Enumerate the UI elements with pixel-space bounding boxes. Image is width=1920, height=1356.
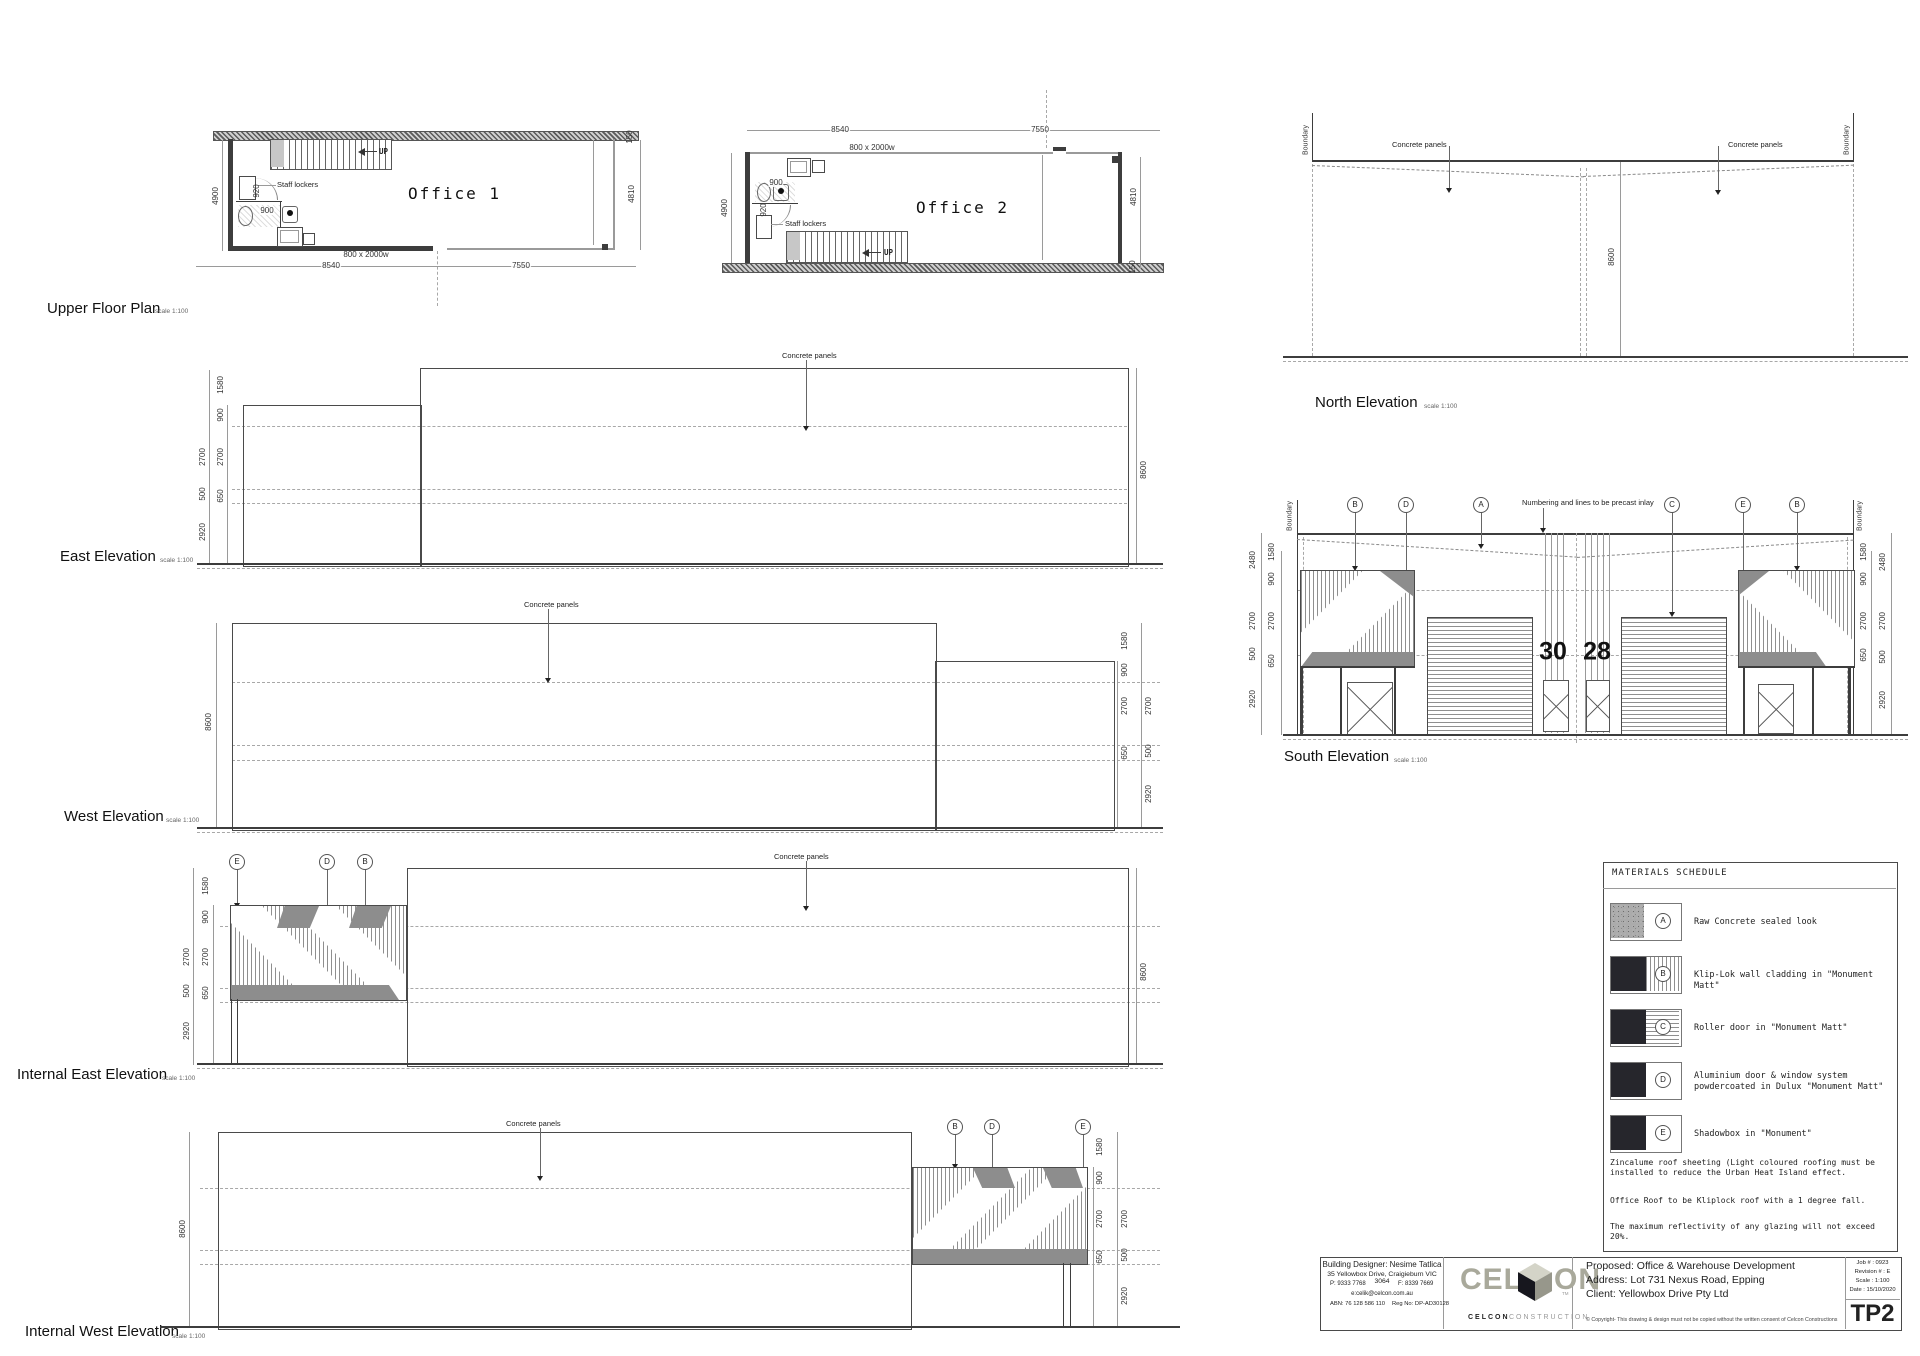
office1-east-wall <box>613 139 615 250</box>
south-roller-door-1 <box>1427 617 1533 736</box>
west-dim-8600: 8600 <box>205 713 213 731</box>
office2-up-label: UP <box>884 249 893 257</box>
iw-dim-line-inner <box>1093 1167 1094 1328</box>
east-dim-2700-outer: 2700 <box>199 448 207 466</box>
west-concrete-leader <box>548 609 549 678</box>
iw-concrete-arrow <box>537 1176 543 1181</box>
north-boundary-left-dash <box>1312 164 1313 356</box>
north-concrete-arrow-right <box>1715 190 1721 195</box>
north-roofline-left <box>1312 165 1584 177</box>
east-dim-line-inner <box>227 405 228 565</box>
north-boundary-left-label: Boundary <box>1303 125 1310 155</box>
south-marker-d: D <box>1398 497 1414 513</box>
west-dim-line-left <box>216 623 217 829</box>
south-marker-b1: B <box>1347 497 1363 513</box>
south-ground-line <box>1283 734 1908 736</box>
north-panel-joint-b <box>1586 168 1587 356</box>
swatch-b-dark <box>1611 957 1646 991</box>
office2-dim-4900: 4900 <box>721 199 729 217</box>
north-concrete-leader-right <box>1718 146 1719 190</box>
office1-dim-8540: 8540 <box>321 262 341 270</box>
north-ground-line <box>1283 356 1908 358</box>
office1-shower-inner <box>280 230 299 243</box>
ie-post-a <box>231 999 232 1065</box>
iw-dim-650: 650 <box>1096 1250 1104 1263</box>
south-right-post-2 <box>1812 668 1814 734</box>
north-concrete-panels-left: Concrete panels <box>1392 141 1447 149</box>
tb-revision: Revision # : E <box>1845 1269 1900 1275</box>
ie-marker-e-leader <box>237 869 238 903</box>
iw-dim-line-left <box>189 1132 190 1328</box>
office1-partition <box>593 140 594 245</box>
office2-south-wall-a <box>745 152 1053 154</box>
iw-marker-b-leader <box>955 1134 956 1164</box>
ie-dim-8600: 8600 <box>1140 963 1148 981</box>
north-ground-dash <box>1283 361 1908 362</box>
north-boundary-right-label: Boundary <box>1844 125 1851 155</box>
north-boundary-right-dash <box>1853 164 1854 356</box>
south-elevation-scale: scale 1:100 <box>1394 758 1427 765</box>
iw-marker-e: E <box>1075 1119 1091 1135</box>
office1-dim-900: 900 <box>259 207 274 215</box>
swatch-e-letter: E <box>1655 1125 1671 1141</box>
east-dim-line-right <box>1136 368 1137 565</box>
south-left-grey-band <box>1301 652 1414 667</box>
east-dim-8600: 8600 <box>1140 461 1148 479</box>
schedule-note-1: Zincalume roof sheeting (Light coloured … <box>1610 1158 1892 1179</box>
south-left-post-3 <box>1394 668 1396 735</box>
office2-title: Office 2 <box>916 200 1009 216</box>
office2-east-wall <box>1118 152 1122 264</box>
ie-dim-line-outer <box>193 868 194 1065</box>
office1-dim-4810: 4810 <box>628 185 636 203</box>
tb-email: e:celik@celcon.com.au <box>1322 1291 1442 1298</box>
south-boundary-left-label: Boundary <box>1287 501 1294 531</box>
south-roofline-left <box>1297 539 1578 558</box>
ie-dim-line-right <box>1136 868 1137 1065</box>
south-boundary-left <box>1297 500 1298 735</box>
office2-dim-8540: 8540 <box>830 126 850 134</box>
south-roofline-right <box>1577 540 1854 558</box>
west-dim-650: 650 <box>1121 746 1129 759</box>
schedule-note-3: The maximum reflectivity of any glazing … <box>1610 1222 1892 1243</box>
office2-toilet-seat <box>778 188 784 194</box>
swatch-c-letter: C <box>1655 1019 1671 1035</box>
west-dim-2700-outer: 2700 <box>1145 697 1153 715</box>
east-concrete-panels-label: Concrete panels <box>782 352 837 360</box>
tb-date: Date : 15/10/2020 <box>1845 1287 1900 1293</box>
north-panel-joint-a <box>1580 168 1581 356</box>
material-label-e: Shadowbox in "Monument" <box>1694 1129 1884 1140</box>
south-numbering-note: Numbering and lines to be precast inlay <box>1522 499 1654 507</box>
north-parapet-line <box>1312 160 1854 162</box>
south-roller-door-2 <box>1621 617 1727 736</box>
office2-dim-line-right <box>1140 157 1141 269</box>
east-ground-dash <box>197 568 1163 569</box>
office1-basin <box>238 206 253 226</box>
ie-cladding-panel <box>230 905 407 1001</box>
south-precast-number-28: 28 <box>1583 640 1611 665</box>
ie-dim-2700-o: 2700 <box>183 948 191 966</box>
iw-main-wall <box>218 1132 912 1330</box>
office1-dim-line-bottom <box>196 266 636 267</box>
south-marker-b1-leader <box>1355 512 1356 566</box>
tb-client: Client: Yellowbox Drive Pty Ltd <box>1586 1289 1728 1301</box>
tb-fax: F: 8339 7669 <box>1398 1281 1433 1288</box>
east-tall-wall <box>420 368 1129 567</box>
south-dim-2920-r: 2920 <box>1879 691 1887 709</box>
south-dim-line-right-outer <box>1891 533 1892 735</box>
west-elevation-scale: scale 1:100 <box>166 818 199 825</box>
tb-scale: Scale : 1:100 <box>1845 1278 1900 1284</box>
ie-grey-seg-2 <box>349 906 391 928</box>
south-marker-a: A <box>1473 497 1489 513</box>
office2-partition <box>1042 155 1043 260</box>
south-numbering-leader <box>1543 508 1544 528</box>
south-dim-500-l: 500 <box>1249 647 1257 660</box>
iw-dim-2700-o: 2700 <box>1121 1210 1129 1228</box>
south-dim-2480-r: 2480 <box>1879 553 1887 571</box>
south-left-window <box>1347 682 1393 735</box>
ie-dim-2920: 2920 <box>183 1022 191 1040</box>
south-dim-2700-li: 2700 <box>1268 612 1276 630</box>
celcon-sub-light: CONSTRUCTION <box>1509 1314 1589 1322</box>
ie-dim-500: 500 <box>183 984 191 997</box>
office2-dim-line-top <box>747 130 1160 131</box>
ie-dim-1580: 1580 <box>202 877 210 895</box>
ie-dim-900: 900 <box>202 910 210 923</box>
ie-post-b <box>237 999 238 1065</box>
south-right-post-3 <box>1848 668 1851 734</box>
ie-marker-d: D <box>319 854 335 870</box>
office1-window-wall <box>447 248 614 250</box>
office2-dim-150: 150 <box>1129 260 1137 273</box>
ie-marker-b-leader <box>365 869 366 905</box>
west-dim-2920: 2920 <box>1145 785 1153 803</box>
ie-grey-band-bottom <box>231 985 399 1000</box>
south-dim-1580-r: 1580 <box>1860 543 1868 561</box>
south-right-rail <box>1738 666 1855 668</box>
office2-up-arrow-line <box>869 252 881 253</box>
office2-up-arrow <box>862 249 869 257</box>
east-elevation-title: East Elevation <box>60 549 156 564</box>
tb-address: Address: Lot 731 Nexus Road, Epping <box>1586 1275 1765 1287</box>
office1-wc-partition-h <box>236 201 282 202</box>
iw-post-a <box>1063 1263 1064 1328</box>
south-dim-650-l: 650 <box>1268 654 1276 667</box>
office2-section-line <box>1046 90 1047 148</box>
south-cladding-panel-right <box>1738 570 1855 668</box>
east-dim-1580: 1580 <box>217 376 225 394</box>
east-dim-2700-inner: 2700 <box>217 448 225 466</box>
celcon-sub-bold: CELCON <box>1468 1314 1510 1322</box>
west-concrete-panels-label: Concrete panels <box>524 601 579 609</box>
south-elevation-title: South Elevation <box>1284 749 1389 764</box>
south-dim-2700-ri: 2700 <box>1860 612 1868 630</box>
office1-stair <box>270 139 392 170</box>
tb-abn: ABN: 76 128 586 110 <box>1330 1301 1385 1307</box>
ie-dim-650: 650 <box>202 986 210 999</box>
celcon-logo-tm: TM <box>1562 1292 1569 1297</box>
south-dim-900-l: 900 <box>1268 572 1276 585</box>
swatch-b <box>1610 956 1682 994</box>
south-marker-a-leader <box>1481 512 1482 544</box>
south-marker-b2: B <box>1789 497 1805 513</box>
east-dim-900: 900 <box>217 408 225 421</box>
west-elevation-title: West Elevation <box>64 809 164 824</box>
swatch-e <box>1610 1115 1682 1153</box>
south-dim-line-right-inner <box>1871 551 1872 735</box>
office1-dim-line-right <box>640 140 641 250</box>
south-ground-dash <box>1283 739 1908 740</box>
south-dim-500-r: 500 <box>1879 650 1887 663</box>
south-dim-1580-l: 1580 <box>1268 543 1276 561</box>
south-boundary-right-label: Boundary <box>1857 501 1864 531</box>
office1-wc-partition-v <box>280 201 281 227</box>
south-dim-650-r: 650 <box>1860 648 1868 661</box>
office2-column <box>1112 156 1119 163</box>
west-ground-dash <box>197 832 1163 833</box>
iw-ground-line <box>160 1326 1180 1328</box>
east-concrete-arrow <box>803 426 809 431</box>
south-left-post-1 <box>1300 668 1303 735</box>
materials-schedule-divider <box>1603 888 1896 889</box>
office1-up-arrow <box>358 148 365 156</box>
tb-designer: Building Designer: Nesime Tatlica <box>1322 1261 1442 1270</box>
south-dim-2700-lo: 2700 <box>1249 612 1257 630</box>
sheet-number: TP2 <box>1845 1301 1900 1327</box>
internal-west-title: Internal West Elevation <box>25 1324 179 1339</box>
office1-staff-lockers-label: Staff lockers <box>277 181 318 189</box>
south-precast-number-30: 30 <box>1539 640 1567 665</box>
south-right-window <box>1758 684 1794 734</box>
swatch-a-texture <box>1611 904 1644 938</box>
south-marker-b2-leader <box>1797 512 1798 566</box>
north-concrete-arrow-left <box>1446 188 1452 193</box>
tb-proposed: Proposed: Office & Warehouse Development <box>1586 1261 1795 1273</box>
swatch-d <box>1610 1062 1682 1100</box>
celcon-logo-cube-icon <box>1518 1263 1552 1301</box>
office2-door-size: 800 x 2000w <box>848 144 895 152</box>
west-dim-900: 900 <box>1121 663 1129 676</box>
ie-concrete-leader <box>806 861 807 906</box>
internal-east-title: Internal East Elevation <box>17 1067 167 1082</box>
south-dim-2700-ro: 2700 <box>1879 612 1887 630</box>
iw-dim-line-outer <box>1117 1132 1118 1328</box>
north-boundary-left <box>1312 113 1313 162</box>
east-elevation-scale: scale 1:100 <box>160 558 193 565</box>
office1-west-wall <box>228 139 233 251</box>
office1-duct <box>303 233 315 245</box>
ie-concrete-arrow <box>803 906 809 911</box>
office2-shower-inner <box>790 161 807 173</box>
south-left-post-2 <box>1340 668 1342 735</box>
office2-duct <box>812 160 825 173</box>
ie-main-wall <box>407 868 1129 1067</box>
office1-dim-line-left <box>222 140 223 251</box>
south-dim-line-left-inner <box>1281 551 1282 735</box>
iw-dim-2920: 2920 <box>1121 1287 1129 1305</box>
ie-dim-line-inner <box>213 905 214 1065</box>
iw-marker-b: B <box>947 1119 963 1135</box>
swatch-a <box>1610 903 1682 941</box>
office1-south-wall <box>228 246 433 251</box>
material-label-d: Aluminium door & window system powdercoa… <box>1694 1071 1889 1092</box>
office2-dim-920: 920 <box>760 203 768 216</box>
iw-grey-band-bottom <box>913 1249 1087 1264</box>
south-dim-2920-l: 2920 <box>1249 690 1257 708</box>
office1-dim-7550: 7550 <box>511 262 531 270</box>
south-dim-line-left-outer <box>1261 533 1262 735</box>
office2-south-wall-b <box>1066 152 1122 154</box>
north-concrete-leader-left <box>1449 146 1450 188</box>
west-low-wall <box>935 661 1115 831</box>
iw-marker-d: D <box>984 1119 1000 1135</box>
north-boundary-right <box>1853 113 1854 162</box>
iw-concrete-panels-label: Concrete panels <box>506 1120 561 1128</box>
east-dim-500: 500 <box>199 487 207 500</box>
iw-post-b <box>1070 1263 1071 1328</box>
iw-dim-2700-i: 2700 <box>1096 1210 1104 1228</box>
ie-ground-dash <box>197 1068 1163 1069</box>
south-marker-a-arrow <box>1478 544 1484 549</box>
ie-ground-line <box>197 1063 1163 1065</box>
ie-marker-e: E <box>229 854 245 870</box>
office2-lockers <box>756 215 772 239</box>
swatch-b-letter: B <box>1655 966 1671 982</box>
iw-dim-900: 900 <box>1096 1171 1104 1184</box>
iw-concrete-leader <box>540 1128 541 1176</box>
west-dim-line-outer <box>1141 623 1142 829</box>
internal-east-scale: scale 1:100 <box>162 1076 195 1083</box>
internal-west-scale: scale 1:100 <box>172 1334 205 1341</box>
office1-title: Office 1 <box>408 186 501 202</box>
office2-west-wall <box>745 152 750 264</box>
schedule-note-2: Office Roof to be Kliplock roof with a 1… <box>1610 1196 1892 1206</box>
east-low-wall <box>243 405 422 567</box>
office2-stair <box>786 231 908 263</box>
office2-dim-900: 900 <box>768 179 783 187</box>
material-label-c: Roller door in "Monument Matt" <box>1694 1023 1884 1034</box>
tb-reg: Reg No: DP-AD30128 <box>1392 1301 1449 1307</box>
south-party-line <box>1576 533 1577 743</box>
office1-section-line <box>437 251 438 306</box>
swatch-c <box>1610 1009 1682 1047</box>
material-label-a: Raw Concrete sealed look <box>1694 917 1884 928</box>
office1-up-arrow-line <box>365 151 377 152</box>
drawing-sheet: UP Staff lockers 920 900 Office 1 4900 8… <box>0 0 1920 1356</box>
upper-floor-plan-title: Upper Floor Plan <box>47 301 160 316</box>
east-dim-line-outer <box>209 370 210 565</box>
office2-door-leaf <box>1053 147 1066 151</box>
office1-dim-920: 920 <box>253 184 261 197</box>
east-dim-2920: 2920 <box>199 523 207 541</box>
swatch-e-dark <box>1611 1116 1646 1150</box>
iw-dim-500: 500 <box>1121 1248 1129 1261</box>
celcon-logo-pre: CEL <box>1460 1263 1523 1296</box>
office2-lockers-leader <box>771 224 783 225</box>
office1-column <box>602 244 608 250</box>
west-dim-line-inner <box>1117 661 1118 829</box>
office2-dim-line-left <box>731 153 732 263</box>
west-dim-500: 500 <box>1145 744 1153 757</box>
south-right-grey-band <box>1739 652 1826 667</box>
south-entry-door-30 <box>1543 680 1569 732</box>
north-dim-8600: 8600 <box>1608 248 1616 266</box>
swatch-a-letter: A <box>1655 913 1671 929</box>
south-right-post-1 <box>1743 668 1745 734</box>
upper-floor-plan-scale: scale 1:100 <box>155 309 188 316</box>
south-entry-door-28 <box>1586 680 1610 732</box>
ie-concrete-panels-label: Concrete panels <box>774 853 829 861</box>
south-marker-c-leader <box>1672 512 1673 612</box>
south-cladding-panel-left <box>1300 570 1415 668</box>
south-marker-c: C <box>1664 497 1680 513</box>
west-dim-1580: 1580 <box>1121 632 1129 650</box>
iw-cladding-panel <box>912 1167 1088 1265</box>
south-marker-e-leader <box>1743 512 1744 570</box>
north-elevation-scale: scale 1:100 <box>1424 404 1457 411</box>
office1-door-size: 800 x 2000w <box>342 251 389 259</box>
materials-schedule-title: MATERIALS SCHEDULE <box>1612 868 1728 878</box>
office1-up-label: UP <box>379 148 388 156</box>
south-left-rail <box>1300 666 1415 668</box>
office1-dim-150: 150 <box>626 130 634 143</box>
office1-stair-landing <box>271 140 284 167</box>
west-dim-2700-inner: 2700 <box>1121 697 1129 715</box>
office2-north-wall <box>722 263 1164 273</box>
office2-stair-landing <box>787 232 800 260</box>
office2-dim-4810: 4810 <box>1130 188 1138 206</box>
office1-dim-4900: 4900 <box>212 187 220 205</box>
office2-staff-lockers-label: Staff lockers <box>785 220 826 228</box>
swatch-d-letter: D <box>1655 1072 1671 1088</box>
south-dim-900-r: 900 <box>1860 572 1868 585</box>
swatch-d-dark <box>1611 1063 1646 1097</box>
north-concrete-panels-right: Concrete panels <box>1728 141 1783 149</box>
east-ground-line <box>197 563 1163 565</box>
swatch-c-dark <box>1611 1010 1646 1044</box>
west-tall-wall <box>232 623 937 831</box>
east-dim-650: 650 <box>217 489 225 502</box>
ie-marker-b: B <box>357 854 373 870</box>
ie-dim-2700-i: 2700 <box>202 948 210 966</box>
west-concrete-arrow <box>545 678 551 683</box>
material-label-b: Klip-Lok wall cladding in "Monument Matt… <box>1694 970 1884 991</box>
tb-job: Job # : 0923 <box>1845 1260 1900 1266</box>
tb-copyright: © Copyright- This drawing & design must … <box>1586 1318 1842 1324</box>
tb-divider-1 <box>1443 1257 1444 1329</box>
north-dim-line <box>1620 162 1621 356</box>
office1-toilet-seat <box>287 210 293 216</box>
tb-phone: P: 9333 7768 <box>1330 1281 1366 1288</box>
west-ground-line <box>197 827 1163 829</box>
south-dim-2480-l: 2480 <box>1249 551 1257 569</box>
north-elevation-title: North Elevation <box>1315 395 1418 410</box>
east-concrete-leader <box>806 360 807 426</box>
iw-dim-8600: 8600 <box>179 1220 187 1238</box>
iw-dim-1580: 1580 <box>1096 1138 1104 1156</box>
south-marker-e: E <box>1735 497 1751 513</box>
